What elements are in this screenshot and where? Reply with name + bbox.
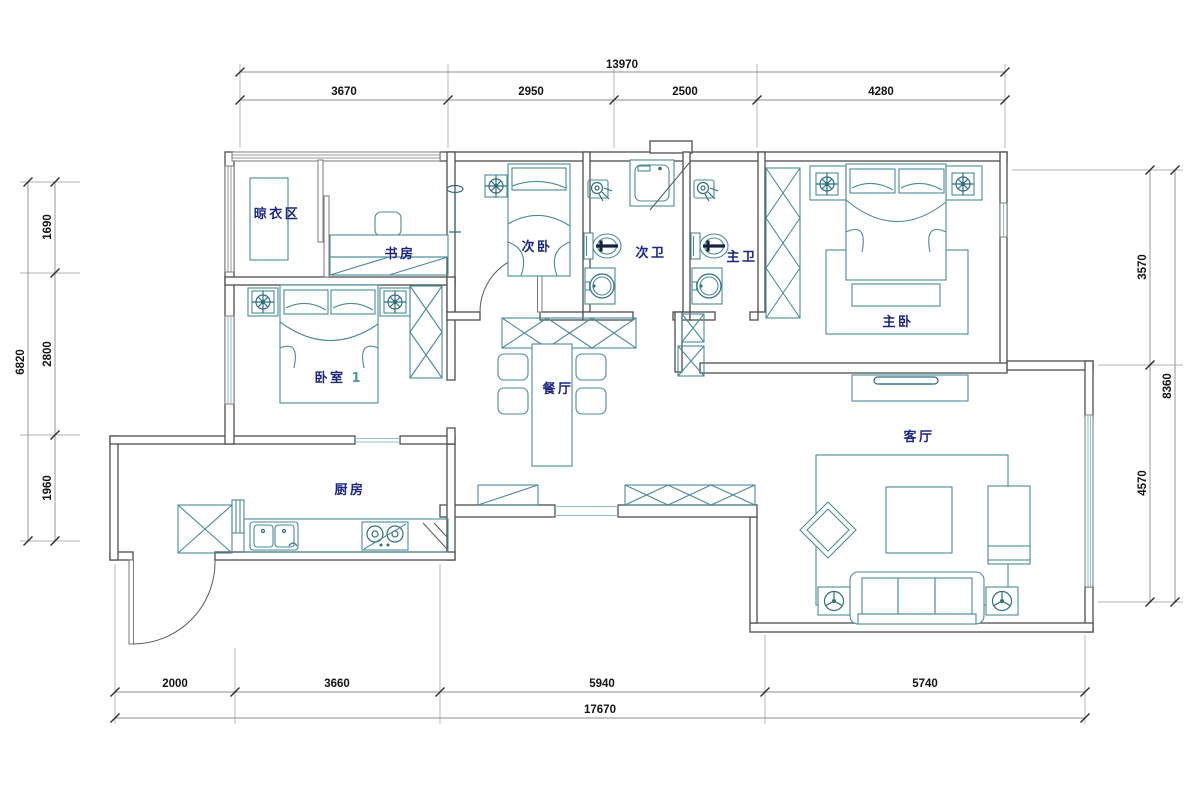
stove-icon	[362, 522, 408, 550]
accent-chair-diamond	[800, 502, 856, 558]
corner-shelf	[423, 523, 447, 549]
room-label-bedroom2: 次卧	[521, 239, 552, 255]
dining-table	[532, 344, 572, 466]
bedroom2-furniture	[485, 164, 570, 276]
room-label-bedroom1-number: 1	[351, 371, 360, 386]
room-label-bath2: 次卫	[635, 245, 666, 261]
sink-icon	[692, 268, 722, 304]
dining-furniture	[478, 318, 755, 505]
cabinet-end-panel	[232, 500, 244, 533]
master-furniture	[766, 164, 982, 334]
dim-bottom-seg3: 5740	[912, 678, 938, 690]
dim-left: 6820 1690 2800 1960	[15, 178, 60, 546]
dim-top-total: 13970	[606, 59, 638, 71]
sofa	[850, 572, 984, 624]
dining-chair	[498, 354, 528, 380]
washer-icon	[630, 160, 690, 210]
room-label-bedroom1: 卧室	[314, 370, 345, 386]
dim-bottom: 2000 3660 5940 5740 17670	[111, 678, 1090, 723]
dim-right-seg1: 4570	[1137, 470, 1149, 496]
room-label-dining: 餐厅	[541, 381, 573, 397]
room-label-living: 客厅	[903, 429, 934, 445]
tv-cabinet	[852, 375, 968, 401]
balcony-window-top	[232, 152, 440, 161]
shower-icon	[588, 180, 612, 201]
room-label-kitchen: 厨房	[334, 482, 365, 498]
kitchen-sliding-door	[355, 439, 400, 443]
toilet-icon	[584, 233, 621, 259]
coffee-table	[886, 487, 952, 553]
toilet-icon	[691, 233, 728, 259]
room-label-master: 主卧	[882, 314, 913, 330]
living-window	[1085, 415, 1093, 587]
floor-plan-drawing: 13970 3670 2950 2500 4280 6820 1690 2800…	[0, 0, 1200, 800]
room-label-study: 书房	[384, 246, 415, 262]
chaise-chair	[988, 486, 1030, 564]
dim-top-seg3: 4280	[868, 86, 894, 98]
ceiling-lamp-icon	[485, 175, 507, 197]
side-table-left	[818, 587, 850, 615]
dining-chair	[576, 388, 606, 414]
dim-right: 3570 4570 8360	[1137, 166, 1180, 607]
dim-top: 13970 3670 2950 2500 4280	[236, 59, 1010, 105]
entry-door	[129, 560, 215, 644]
side-table-right	[986, 587, 1018, 615]
kitchen-sink-icon	[250, 522, 298, 550]
dim-top-seg0: 3670	[331, 86, 357, 98]
bath2-fixtures	[584, 160, 690, 304]
dim-left-seg2: 1960	[42, 475, 54, 501]
dim-right-seg0: 3570	[1137, 254, 1149, 280]
kitchen-tall-cabinet	[178, 505, 232, 553]
hall-cabinet	[625, 485, 755, 505]
kitchen-furniture	[178, 500, 448, 553]
dim-bottom-seg1: 3660	[324, 678, 350, 690]
hall-window	[555, 507, 618, 516]
balcony-window-left	[225, 166, 234, 272]
living-furniture	[800, 375, 1030, 624]
room-label-bath-master: 主卫	[726, 249, 757, 265]
drying-area-slider	[318, 160, 329, 277]
dim-top-seg2: 2500	[672, 86, 698, 98]
bed-bench	[852, 284, 940, 306]
room-label-drying: 晾衣区	[254, 206, 301, 222]
dim-top-seg1: 2950	[518, 86, 544, 98]
dim-left-seg0: 1690	[42, 214, 54, 240]
dim-left-total: 6820	[15, 349, 27, 375]
floor-plan-canvas: 13970 3670 2950 2500 4280 6820 1690 2800…	[0, 0, 1200, 800]
dim-bottom-seg0: 2000	[162, 678, 188, 690]
master-window	[1000, 203, 1007, 237]
bedroom1-wardrobe	[410, 286, 442, 378]
dim-bottom-seg2: 5940	[589, 678, 615, 690]
dining-chair	[576, 354, 606, 380]
dim-right-total: 8360	[1162, 373, 1174, 399]
dim-bottom-total: 17670	[584, 704, 616, 716]
bedroom1-window	[225, 316, 234, 404]
entry-shoe-cabinet	[478, 485, 538, 505]
bath-master-fixtures	[691, 180, 728, 304]
shower-icon	[694, 180, 718, 201]
dining-chair	[498, 388, 528, 414]
sink-icon	[585, 268, 615, 304]
dim-left-seg1: 2800	[42, 341, 54, 367]
